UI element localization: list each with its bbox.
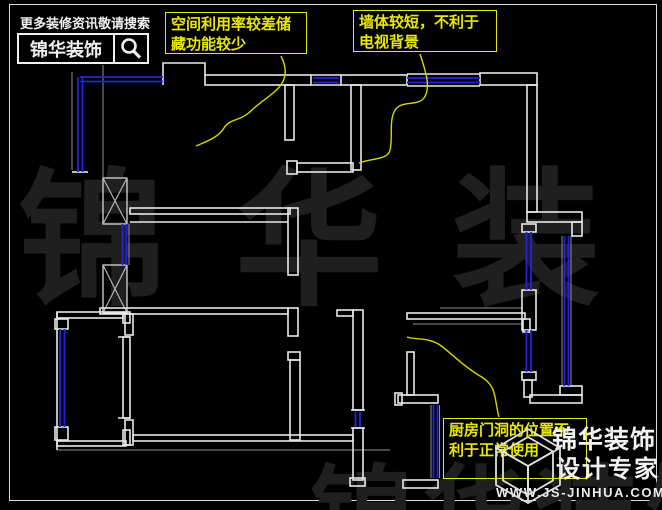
cube-logo-icon: [0, 0, 662, 510]
floorplan-image: 锦 华 装 饰 锦华装饰: [0, 0, 662, 510]
